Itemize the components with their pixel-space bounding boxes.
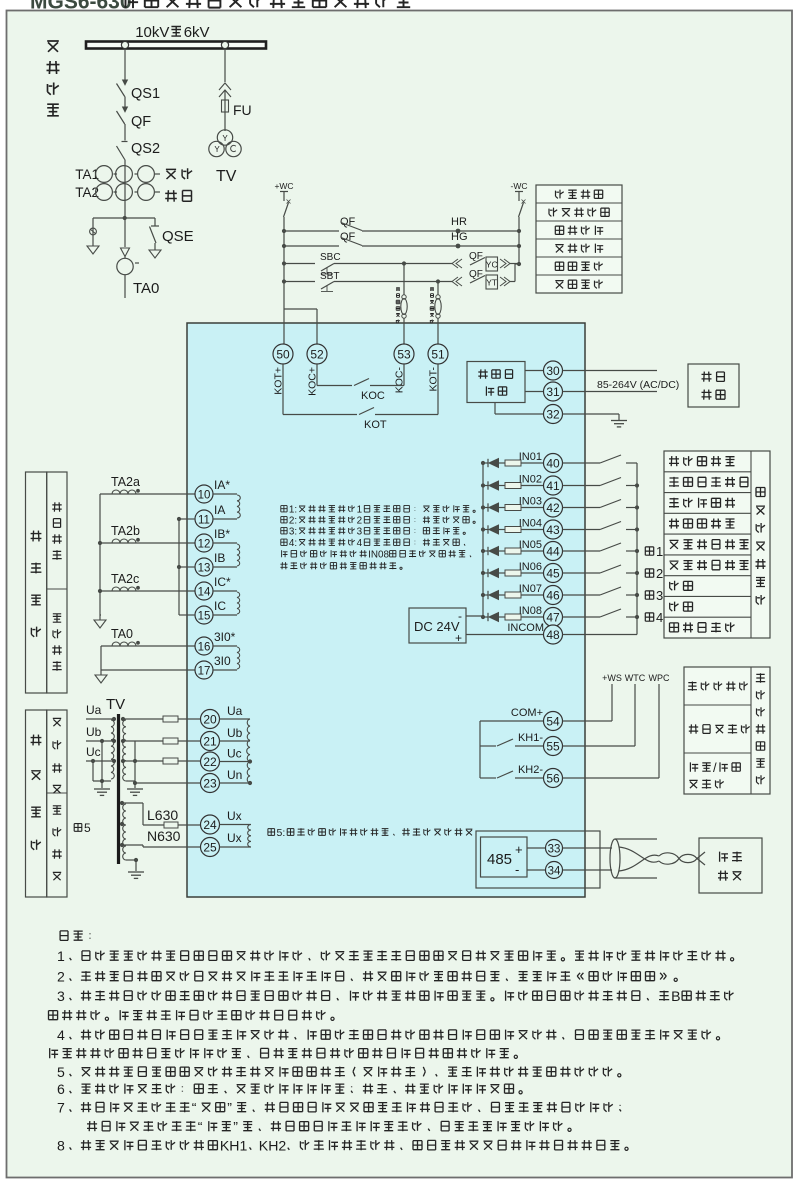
svg-text:2: 2: [656, 566, 663, 581]
svg-text:2: 2: [357, 516, 363, 527]
svg-text:4: 4: [57, 1027, 65, 1043]
svg-text:N630: N630: [147, 828, 181, 844]
svg-text:+WS: +WS: [602, 673, 622, 683]
svg-text:85-264V (AC/DC): 85-264V (AC/DC): [597, 379, 679, 391]
svg-text:48: 48: [546, 628, 560, 642]
svg-text:41: 41: [546, 479, 560, 493]
svg-text:Ux: Ux: [227, 809, 242, 823]
svg-text:KOT: KOT: [364, 419, 387, 431]
svg-text:”: ”: [233, 1119, 238, 1135]
svg-text:IA: IA: [214, 503, 225, 517]
svg-text:FU: FU: [233, 102, 252, 118]
svg-text:”: ”: [227, 1100, 232, 1116]
svg-text:53: 53: [397, 348, 411, 362]
svg-text:B: B: [671, 988, 680, 1004]
svg-text:-: -: [515, 862, 519, 877]
svg-text:3I0: 3I0: [214, 654, 231, 668]
svg-text:IC*: IC*: [214, 575, 231, 589]
svg-text:“: “: [192, 1100, 197, 1116]
svg-text:44: 44: [546, 545, 560, 559]
svg-text:TV: TV: [216, 168, 237, 185]
svg-text:16: 16: [198, 641, 211, 653]
svg-text:IN04: IN04: [519, 518, 542, 530]
svg-text:HR: HR: [451, 216, 467, 228]
svg-text:52: 52: [310, 348, 324, 362]
svg-text:56: 56: [546, 772, 560, 786]
svg-text:QF: QF: [131, 114, 151, 130]
svg-text:Uc: Uc: [227, 747, 242, 761]
svg-text:+: +: [515, 842, 523, 857]
svg-text:3: 3: [57, 988, 65, 1004]
svg-text:Uc: Uc: [86, 745, 101, 759]
svg-text:43: 43: [546, 523, 560, 537]
svg-text:TA0: TA0: [133, 280, 159, 297]
svg-text:1: 1: [57, 948, 65, 964]
svg-text:32: 32: [546, 408, 560, 422]
svg-text:-: -: [458, 609, 462, 623]
svg-text:DC 24V: DC 24V: [414, 619, 460, 634]
svg-text:13: 13: [198, 562, 211, 574]
svg-text:4: 4: [656, 610, 663, 625]
svg-text:51: 51: [431, 348, 445, 362]
svg-text:TA0: TA0: [111, 627, 133, 641]
svg-text:1:: 1:: [289, 505, 297, 516]
svg-text:QF: QF: [469, 251, 483, 262]
svg-text:6: 6: [57, 1081, 65, 1097]
svg-text:KH1: KH1: [220, 1138, 248, 1154]
svg-text:Y: Y: [214, 145, 220, 154]
svg-text:Ua: Ua: [86, 703, 102, 717]
svg-text:42: 42: [546, 501, 560, 515]
svg-text:24: 24: [203, 818, 217, 832]
svg-text:1: 1: [357, 505, 363, 516]
svg-text:Ub: Ub: [227, 726, 243, 740]
svg-text:5: 5: [57, 1064, 65, 1080]
svg-text:/: /: [713, 760, 717, 775]
svg-text:QS2: QS2: [131, 141, 160, 157]
svg-text:15: 15: [198, 610, 211, 622]
svg-text:IN02: IN02: [519, 474, 542, 486]
svg-text:COM+: COM+: [511, 707, 543, 719]
svg-text:QF: QF: [340, 231, 356, 243]
svg-text:11: 11: [198, 514, 210, 526]
svg-text:IN08: IN08: [368, 550, 389, 561]
svg-text:WPC: WPC: [649, 673, 670, 683]
svg-text:Ux: Ux: [227, 831, 242, 845]
svg-text:+WC: +WC: [274, 181, 293, 191]
svg-text:IA*: IA*: [214, 478, 230, 492]
svg-text:SBC: SBC: [320, 252, 341, 263]
svg-text:25: 25: [203, 841, 217, 855]
svg-text:L630: L630: [147, 807, 178, 823]
svg-text:Ub: Ub: [86, 725, 102, 739]
svg-text:IB*: IB*: [214, 527, 230, 541]
svg-text:3: 3: [357, 527, 363, 538]
svg-text:2:: 2:: [289, 516, 297, 527]
svg-text:20: 20: [203, 713, 217, 727]
svg-text:QSE: QSE: [162, 228, 194, 245]
svg-text:3:: 3:: [289, 527, 297, 538]
svg-text:QF: QF: [469, 269, 483, 280]
svg-text:INCOM: INCOM: [507, 622, 544, 634]
svg-text:54: 54: [546, 715, 560, 729]
svg-text:40: 40: [546, 457, 560, 471]
svg-text:+: +: [455, 631, 462, 645]
svg-text:TV: TV: [106, 696, 125, 713]
svg-text:IN07: IN07: [519, 583, 542, 595]
svg-text:TA2a: TA2a: [111, 475, 140, 489]
svg-text:Un: Un: [227, 768, 242, 782]
svg-text:31: 31: [546, 385, 560, 399]
svg-text:IB: IB: [214, 551, 225, 565]
svg-text:IC: IC: [214, 599, 226, 613]
svg-text:KH2: KH2: [259, 1138, 287, 1154]
svg-text:30: 30: [546, 364, 560, 378]
svg-text:“: “: [198, 1119, 203, 1135]
svg-text:14: 14: [198, 586, 211, 598]
svg-text:SBT: SBT: [320, 271, 339, 282]
svg-text:12: 12: [198, 538, 211, 550]
svg-text:KOC: KOC: [361, 390, 385, 402]
svg-text:WTC: WTC: [625, 673, 646, 683]
svg-text:46: 46: [546, 589, 560, 603]
svg-text:2: 2: [57, 969, 65, 985]
svg-text:34: 34: [548, 865, 561, 877]
svg-text:Ua: Ua: [227, 704, 243, 718]
svg-text:KH2-: KH2-: [518, 764, 543, 776]
svg-text:4: 4: [357, 538, 363, 549]
svg-text:KH1-: KH1-: [518, 732, 543, 744]
svg-text:6kV: 6kV: [184, 24, 210, 41]
svg-text:QF: QF: [340, 216, 356, 228]
svg-text:21: 21: [203, 735, 217, 749]
svg-text:YT: YT: [486, 278, 497, 288]
svg-text:IN08: IN08: [519, 605, 542, 617]
svg-text:5:: 5:: [277, 827, 286, 839]
svg-text:4:: 4:: [289, 538, 297, 549]
svg-text:485: 485: [487, 851, 512, 868]
svg-text:47: 47: [546, 611, 560, 625]
svg-text:10kV: 10kV: [135, 24, 169, 41]
svg-text:3: 3: [656, 588, 663, 603]
svg-text:45: 45: [546, 567, 560, 581]
svg-text:33: 33: [548, 843, 561, 855]
svg-text:-WC: -WC: [511, 181, 528, 191]
svg-text:IN06: IN06: [519, 561, 542, 573]
svg-text:IN01: IN01: [519, 451, 542, 463]
svg-text:TA2c: TA2c: [111, 572, 139, 586]
svg-text:17: 17: [198, 665, 211, 677]
svg-text:Y: Y: [222, 134, 228, 143]
svg-text:22: 22: [203, 755, 217, 769]
svg-text:HG: HG: [451, 231, 468, 243]
svg-text:1: 1: [656, 544, 663, 559]
svg-text:55: 55: [546, 740, 560, 754]
svg-text:50: 50: [276, 348, 290, 362]
svg-text:IN05: IN05: [519, 539, 542, 551]
svg-text:TA2b: TA2b: [111, 524, 140, 538]
svg-text:QS1: QS1: [131, 86, 160, 102]
svg-text:7: 7: [57, 1100, 65, 1116]
svg-text:IN03: IN03: [519, 496, 542, 508]
svg-text:5: 5: [84, 821, 91, 835]
svg-text:23: 23: [203, 777, 217, 791]
svg-text:10: 10: [198, 489, 211, 501]
svg-text:YC: YC: [486, 260, 498, 270]
svg-text:3I0*: 3I0*: [214, 630, 236, 644]
svg-text:8: 8: [57, 1138, 65, 1154]
